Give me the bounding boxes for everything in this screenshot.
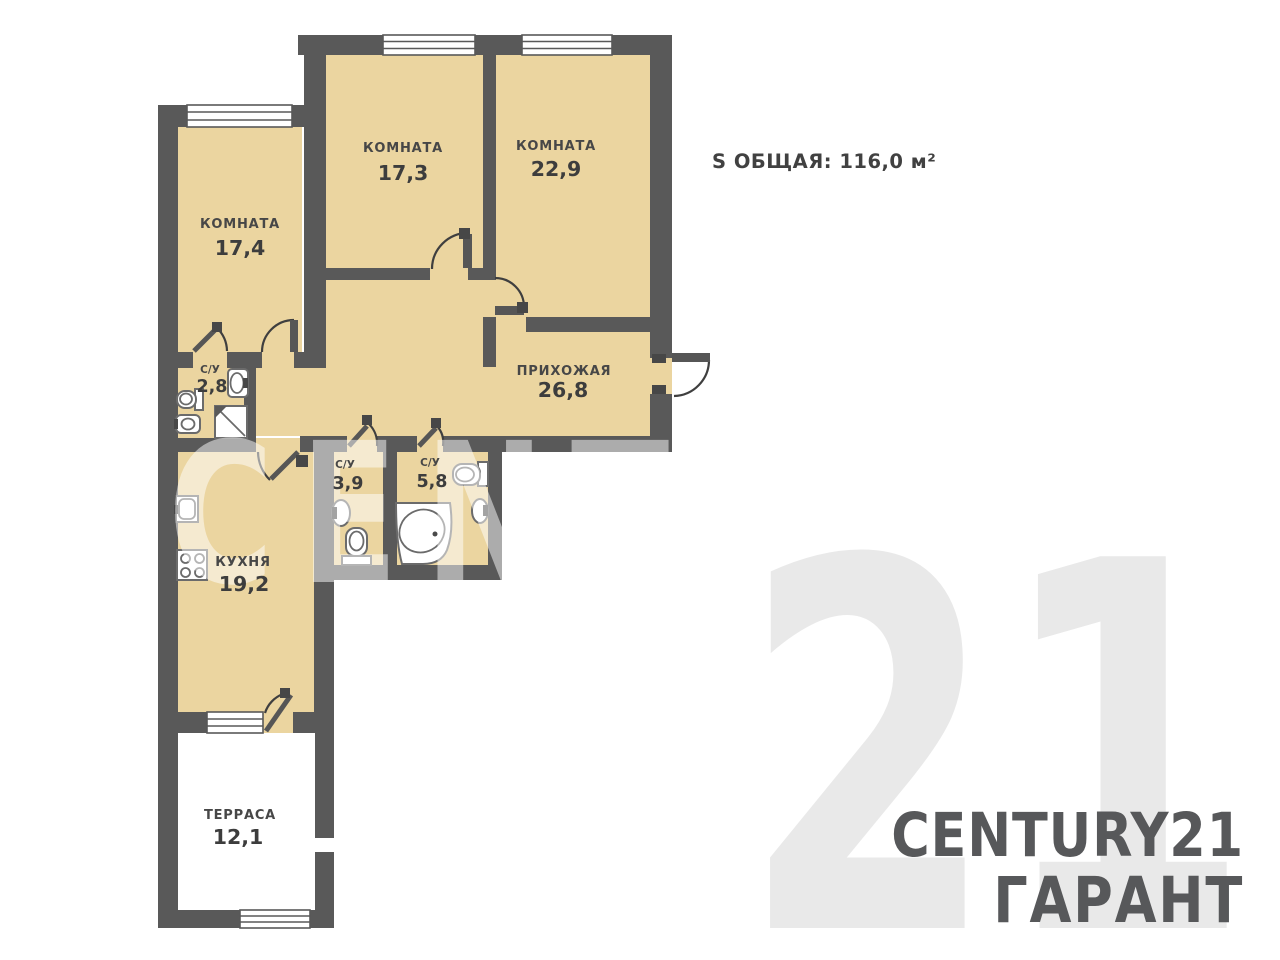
terrace-wall-notch	[313, 838, 336, 852]
svg-text:17,4: 17,4	[215, 236, 266, 260]
svg-text:КОМНАТА: КОМНАТА	[516, 139, 596, 154]
label-kitchen: КУХНЯ 19,2	[215, 555, 271, 596]
svg-text:ПРИХОЖАЯ: ПРИХОЖАЯ	[517, 364, 612, 379]
window-room-17-3	[383, 35, 475, 55]
svg-text:26,8: 26,8	[538, 378, 589, 402]
svg-text:С/У: С/У	[420, 457, 440, 469]
door-gap-22-9	[496, 317, 526, 332]
window-room-17-4	[187, 105, 292, 127]
floorplan-page: CENTU КОМНАТА 17,3 КОМНАТА 22,9 КОМНАТА …	[0, 0, 1280, 960]
svg-text:19,2: 19,2	[219, 572, 270, 596]
svg-text:С/У: С/У	[335, 459, 355, 471]
svg-text:ТЕРРАСА: ТЕРРАСА	[204, 808, 276, 823]
svg-text:3,9: 3,9	[332, 474, 363, 494]
total-area-label: S ОБЩАЯ: 116,0 м²	[712, 150, 936, 173]
floor-room-22-9	[496, 55, 650, 317]
svg-text:КУХНЯ: КУХНЯ	[215, 555, 271, 570]
svg-text:22,9: 22,9	[531, 157, 582, 181]
svg-text:12,1: 12,1	[213, 825, 264, 849]
label-terrace: ТЕРРАСА 12,1	[204, 808, 276, 849]
branding: 21 CENTURY21 ГАРАНТ	[741, 455, 1252, 960]
svg-text:2,8: 2,8	[196, 377, 227, 397]
sink-bath-2-8	[228, 369, 248, 397]
window-terrace	[240, 910, 310, 928]
window-room-22-9	[522, 35, 612, 55]
svg-text:17,3: 17,3	[378, 161, 429, 185]
svg-text:КОМНАТА: КОМНАТА	[200, 217, 280, 232]
door-gap-17-3	[430, 268, 468, 280]
logo-garant: ГАРАНТ	[993, 863, 1244, 937]
door-gap-17-4-entry	[262, 352, 294, 368]
svg-text:С/У: С/У	[200, 364, 220, 376]
svg-text:КОМНАТА: КОМНАТА	[363, 141, 443, 156]
logo-century21: CENTURY21	[891, 800, 1244, 871]
window-kitchen	[207, 712, 263, 733]
svg-text:5,8: 5,8	[416, 472, 447, 492]
floorplan-canvas: CENTU КОМНАТА 17,3 КОМНАТА 22,9 КОМНАТА …	[0, 0, 1280, 960]
